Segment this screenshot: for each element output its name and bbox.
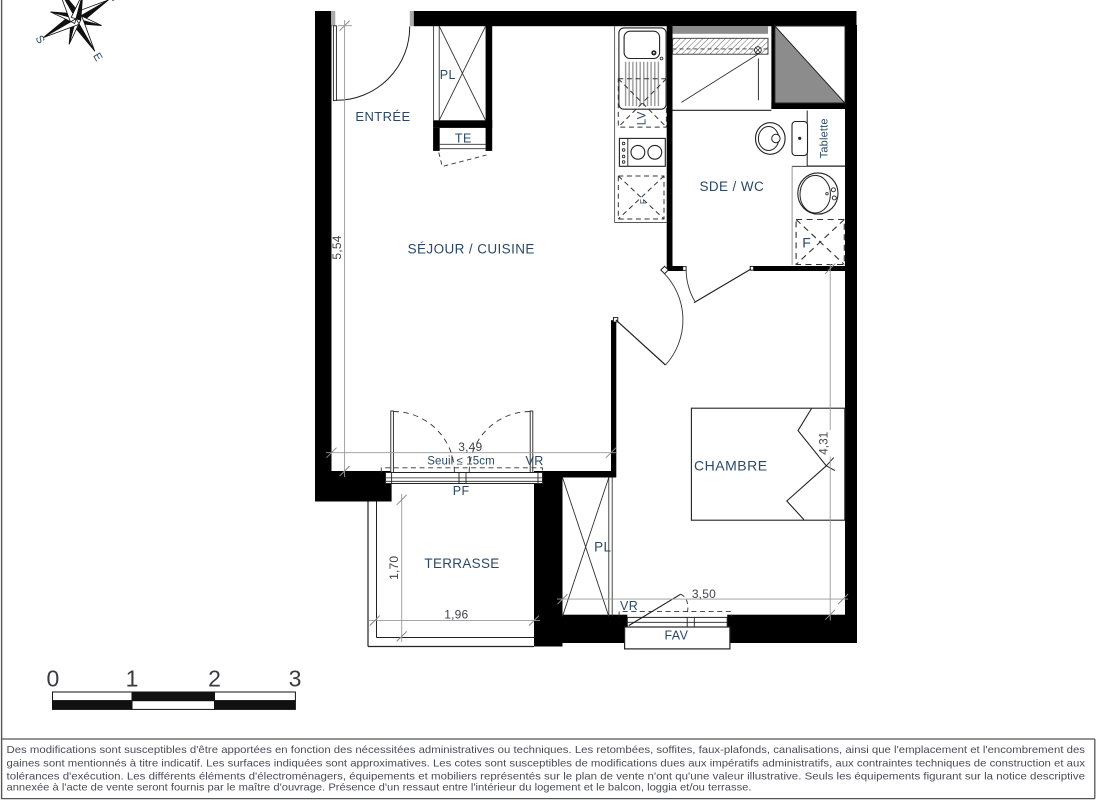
svg-text:3,50: 3,50: [692, 587, 716, 601]
svg-text:4,31: 4,31: [818, 432, 830, 455]
svg-text:Seuil ≤ 15cm: Seuil ≤ 15cm: [427, 455, 495, 467]
svg-text:F: F: [802, 235, 811, 251]
svg-text:FAV: FAV: [664, 628, 688, 642]
svg-text:0: 0: [47, 666, 60, 692]
svg-text:1: 1: [126, 666, 139, 692]
svg-text:gaines sont mentionnés à titre: gaines sont mentionnés à titre indicatif…: [7, 758, 1086, 769]
svg-text:TERRASSE: TERRASSE: [424, 556, 499, 571]
svg-text:PF: PF: [453, 484, 470, 498]
svg-text:PL: PL: [594, 539, 611, 554]
svg-text:Tablette: Tablette: [819, 118, 831, 158]
svg-text:1,96: 1,96: [444, 607, 468, 621]
svg-text:SDE / WC: SDE / WC: [699, 179, 764, 194]
svg-text:SÉJOUR / CUISINE: SÉJOUR / CUISINE: [408, 242, 535, 257]
svg-text:LV: LV: [637, 111, 649, 125]
svg-text:3: 3: [289, 666, 302, 692]
svg-text:E: E: [90, 51, 104, 63]
svg-text:ENTRÉE: ENTRÉE: [355, 109, 410, 124]
svg-text:annexée à l'acte de vente sero: annexée à l'acte de vente seront fournis…: [7, 783, 752, 794]
svg-text:CHAMBRE: CHAMBRE: [694, 457, 768, 473]
svg-text:N: N: [106, 0, 120, 3]
svg-text:tolérances d'exécution. Les di: tolérances d'exécution. Les différents é…: [7, 771, 1086, 782]
svg-text:5,54: 5,54: [330, 235, 344, 259]
svg-text:VR: VR: [526, 454, 544, 468]
svg-text:S: S: [33, 34, 47, 46]
svg-text:TE: TE: [455, 132, 472, 146]
svg-text:1,70: 1,70: [387, 556, 401, 580]
svg-text:F: F: [639, 199, 648, 204]
svg-text:3,49: 3,49: [458, 440, 482, 454]
svg-text:VR: VR: [620, 599, 638, 613]
svg-text:PL: PL: [440, 68, 456, 82]
svg-text:Des modifications sont suscept: Des modifications sont susceptibles d'êt…: [7, 745, 1086, 756]
svg-text:2: 2: [208, 666, 221, 692]
